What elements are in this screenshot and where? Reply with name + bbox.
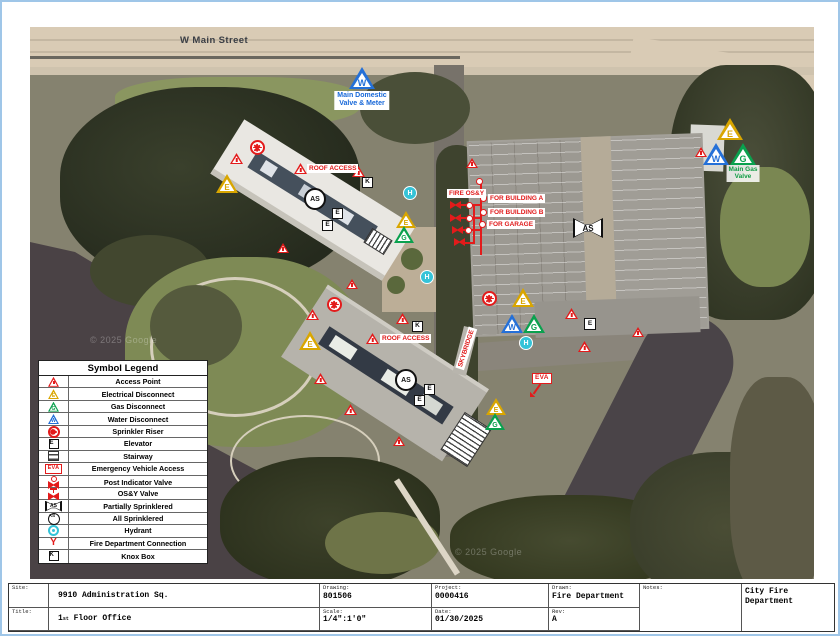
legend-label: Fire Department Connection	[69, 538, 207, 549]
site-value: 9910 Administration Sq.	[52, 585, 316, 606]
gas-disconnect-marker: G	[394, 226, 414, 243]
main-gas-label: Main GasValve	[727, 165, 760, 182]
elevator-marker: E	[414, 395, 425, 406]
post-indicator-valve-marker	[466, 215, 473, 222]
tree-cluster	[150, 285, 242, 367]
title-label: Title:	[12, 609, 45, 616]
legend-label: Stairway	[69, 451, 207, 462]
legend-label: All Sprinklered	[69, 513, 207, 525]
access-point-marker	[344, 404, 357, 415]
rev-value: A	[552, 615, 636, 625]
legend-label: Knox Box	[69, 550, 207, 562]
access-point-marker	[277, 243, 289, 253]
gas-disconnect-icon: G	[39, 401, 69, 412]
legend-label: Hydrant	[69, 525, 207, 536]
eva-arrow-icon	[533, 384, 542, 395]
knox-box-marker: K	[412, 321, 423, 332]
lawn	[720, 167, 810, 287]
access-point-icon	[39, 376, 69, 387]
post-indicator-valve-marker	[479, 221, 486, 228]
access-point-marker	[396, 313, 409, 324]
legend-row: KKnox Box	[39, 550, 207, 562]
access-point-marker	[466, 158, 478, 168]
electrical-disconnect-marker: E	[717, 118, 743, 140]
aerial-photo: W Main Street © 2025 Google © 2025 Googl…	[30, 27, 814, 579]
fdc-icon: Y	[39, 538, 69, 549]
osy-valve-icon	[39, 488, 69, 500]
elevator-marker: E	[322, 220, 333, 231]
legend-label: Access Point	[69, 376, 207, 387]
knox-box-icon: K	[39, 550, 69, 562]
access-point-marker	[393, 436, 405, 446]
access-point-marker	[314, 373, 327, 384]
access-point-marker	[294, 163, 307, 174]
elevator-marker: E	[424, 384, 435, 395]
legend-label: Water Disconnect	[69, 413, 207, 424]
hydrant-icon	[39, 525, 69, 536]
post-indicator-valve-marker	[480, 209, 487, 216]
title-label-cell: Title:	[9, 608, 49, 632]
site-label-cell: Site:	[9, 584, 49, 608]
sprinkler-riser-marker	[250, 140, 265, 155]
access-point-marker	[346, 279, 358, 289]
all-sprinklered-marker: AS	[304, 188, 326, 210]
hedge	[387, 276, 405, 294]
legend-row: YFire Department Connection	[39, 538, 207, 550]
legend-label: Electrical Disconnect	[69, 388, 207, 399]
water-disconnect-marker: W	[349, 67, 375, 89]
rev-label: Rev:	[552, 609, 636, 616]
project-label: Project:	[435, 585, 545, 592]
organization-cell: City Fire Department	[742, 584, 834, 631]
drawing-cell: Drawing:801506	[320, 584, 432, 608]
symbol-legend: Symbol Legend Access PointEElectrical Di…	[38, 360, 208, 564]
partially-sprinklered-marker: AS	[573, 218, 603, 238]
legend-row: Sprinkler Riser	[39, 426, 207, 438]
electrical-disconnect-marker: E	[512, 288, 534, 307]
sprinkler-riser-icon	[39, 426, 69, 438]
drawn-cell: Drawn:Fire Department	[549, 584, 640, 608]
title-value: 1st Floor Office	[52, 609, 316, 630]
legend-row: GGas Disconnect	[39, 401, 207, 413]
watermark: © 2025 Google	[455, 547, 522, 557]
guardrail	[30, 56, 460, 59]
legend-row: Access Point	[39, 376, 207, 388]
all-sprinklered-icon: AS	[39, 513, 69, 525]
post-indicator-valve-icon	[39, 476, 69, 489]
eva-marker: EVA	[532, 373, 552, 384]
legend-label: OS&Y Valve	[69, 488, 207, 500]
hydrant-marker: H	[519, 336, 533, 350]
for-building-a-label: FOR BUILDING A	[488, 194, 545, 203]
hedge	[401, 248, 423, 270]
legend-row: Hydrant	[39, 525, 207, 537]
watermark: © 2025 Google	[90, 335, 157, 345]
water-disconnect-marker: W	[501, 314, 523, 333]
date-label: Date:	[435, 609, 545, 616]
post-indicator-valve-marker	[466, 202, 473, 209]
drawing-label: Drawing:	[323, 585, 428, 592]
plan-sheet: W Main Street © 2025 Google © 2025 Googl…	[0, 0, 840, 636]
legend-label: Elevator	[69, 438, 207, 449]
rev-cell: Rev:A	[549, 608, 640, 632]
gas-disconnect-marker: G	[485, 413, 505, 430]
legend-row: Stairway	[39, 451, 207, 463]
main-domestic-label: Main DomesticValve & Meter	[334, 91, 389, 110]
legend-row: ASAll Sprinklered	[39, 513, 207, 525]
scale-label: Scale:	[323, 609, 428, 616]
title-block: Site: 9910 Administration Sq. Drawing:80…	[8, 583, 835, 632]
fire-osy-label: FIRE OS&Y	[447, 189, 486, 198]
street-label: W Main Street	[180, 35, 248, 46]
title-value-cell: 1st Floor Office	[49, 608, 320, 632]
post-indicator-valve-marker	[465, 227, 472, 234]
electrical-disconnect-marker: E	[299, 331, 321, 350]
site-value-cell: 9910 Administration Sq.	[49, 584, 320, 608]
eva-icon: EVA	[39, 463, 69, 474]
scale-cell: Scale:1/4":1'0"	[320, 608, 432, 632]
elevator-marker: E	[332, 208, 343, 219]
legend-label: Gas Disconnect	[69, 401, 207, 412]
access-point-marker	[230, 153, 243, 164]
road-lane-line	[30, 39, 814, 41]
legend-row: ASPartially Sprinklered	[39, 500, 207, 512]
water-disconnect-icon: W	[39, 413, 69, 424]
date-value: 01/30/2025	[435, 615, 545, 625]
partially-sprinklered-icon: AS	[39, 500, 69, 511]
project-value: 0000416	[435, 592, 545, 602]
drawn-value: Fire Department	[552, 592, 636, 602]
legend-row: EVAEmergency Vehicle Access	[39, 463, 207, 475]
knox-box-marker: K	[362, 177, 373, 188]
legend-label: Partially Sprinklered	[69, 500, 207, 511]
elevator-icon: E	[39, 438, 69, 449]
tree-cluster	[730, 377, 814, 579]
legend-label: Sprinkler Riser	[69, 426, 207, 438]
legend-row: Post Indicator Valve	[39, 476, 207, 488]
post-indicator-valve-marker	[476, 178, 483, 185]
access-point-marker	[366, 333, 379, 344]
hydrant-marker: H	[403, 186, 417, 200]
scale-value: 1/4":1'0"	[323, 615, 428, 625]
legend-label: Emergency Vehicle Access	[69, 463, 207, 474]
drawn-label: Drawn:	[552, 585, 636, 592]
stairway-icon	[39, 451, 69, 462]
legend-row: OS&Y Valve	[39, 488, 207, 500]
for-building-b-label: FOR BUILDING B	[488, 208, 545, 217]
date-cell: Date:01/30/2025	[432, 608, 549, 632]
legend-row: EElectrical Disconnect	[39, 388, 207, 400]
legend-title: Symbol Legend	[39, 361, 207, 376]
notes-label: Notes:	[643, 585, 738, 592]
gas-disconnect-marker: G	[730, 143, 756, 165]
access-point-marker	[695, 147, 707, 157]
access-point-marker	[565, 308, 578, 319]
site-label: Site:	[12, 585, 45, 592]
organization-name: City Fire Department	[745, 585, 831, 606]
parking-garage-wing	[534, 296, 700, 338]
for-garage-label: FOR GARAGE	[487, 220, 535, 229]
access-point-marker	[632, 327, 644, 337]
legend-label: Post Indicator Valve	[69, 476, 207, 489]
notes-cell: Notes:	[640, 584, 742, 631]
electrical-disconnect-icon: E	[39, 388, 69, 399]
project-cell: Project:0000416	[432, 584, 549, 608]
access-point-marker	[306, 309, 319, 320]
sprinkler-riser-marker	[482, 291, 497, 306]
fire-line	[473, 204, 475, 244]
elevator-marker: E	[584, 318, 596, 330]
roof-access-label: ROOF ACCESS	[307, 164, 358, 173]
sprinkler-riser-marker	[327, 297, 342, 312]
access-point-marker	[578, 341, 591, 352]
legend-rows: Access PointEElectrical DisconnectGGas D…	[39, 376, 207, 563]
legend-row: EElevator	[39, 438, 207, 450]
hydrant-marker: H	[420, 270, 434, 284]
roof-access-label: ROOF ACCESS	[380, 334, 431, 343]
all-sprinklered-marker: AS	[395, 369, 417, 391]
electrical-disconnect-marker: E	[216, 174, 238, 193]
gas-disconnect-marker: G	[523, 314, 545, 333]
legend-row: WWater Disconnect	[39, 413, 207, 425]
drawing-value: 801506	[323, 592, 428, 602]
